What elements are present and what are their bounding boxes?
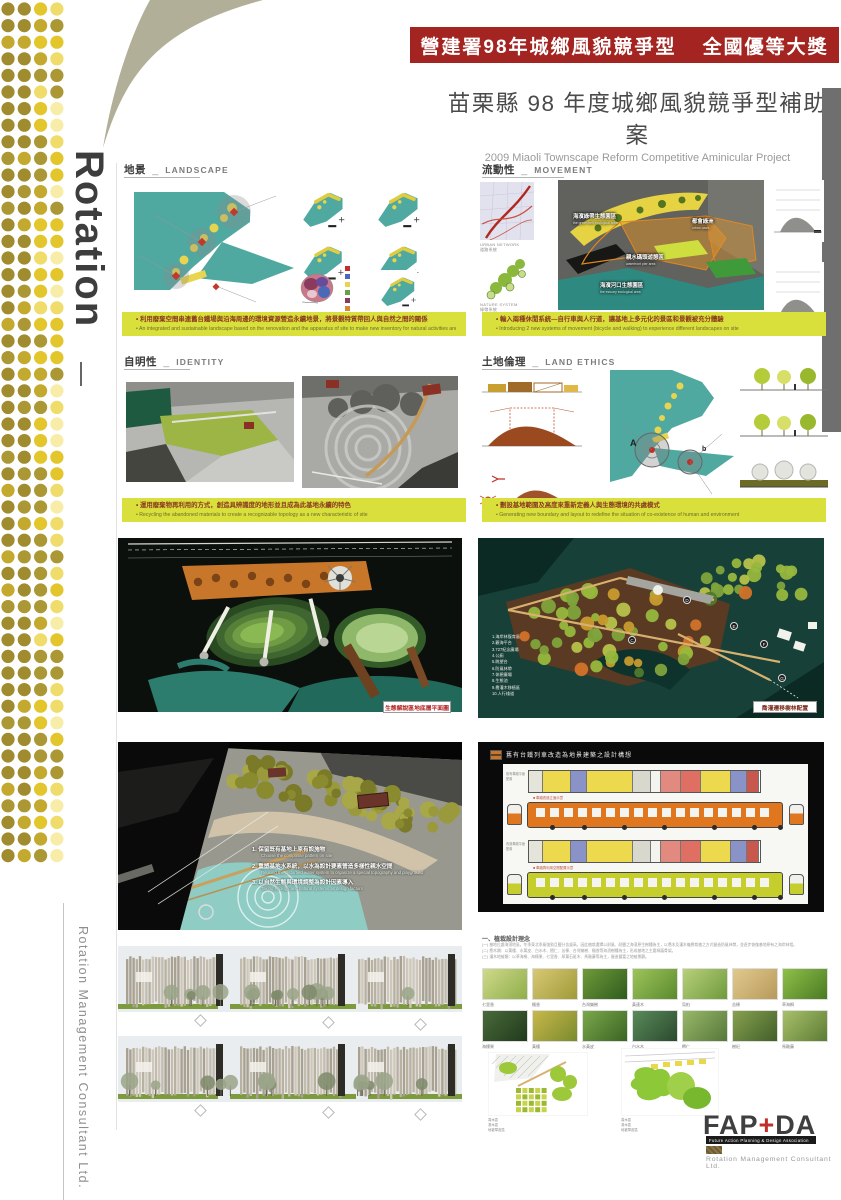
plan-thumbnail (414, 1108, 427, 1121)
section-en: LANDSCAPE (165, 165, 229, 175)
train-compartment (747, 841, 759, 862)
dot (18, 301, 31, 314)
dot (34, 334, 47, 347)
movement-aerial-map (558, 180, 764, 310)
dot (50, 550, 63, 563)
dot (50, 417, 63, 430)
dot (50, 334, 63, 347)
plant-item: 七里香 (482, 968, 528, 1008)
dot (1, 152, 14, 165)
dot (34, 152, 47, 165)
dot (34, 19, 47, 32)
train-compartment (747, 771, 759, 792)
dot (34, 268, 47, 281)
train-compartment (633, 841, 651, 862)
caption-zh: 利用廢棄空間串連舊台鐵場與沿海周邊的環境資源營造永續地景，將景觀特質帶回人與自然… (136, 315, 456, 326)
dot (50, 617, 63, 630)
dot (34, 484, 47, 497)
tree-legend-item: 10.人行棧道 (492, 691, 536, 697)
company-name-vertical: Rotation Management Consultant Ltd. (76, 926, 90, 1189)
aerial-label: 都會綠洲 urban oasis (692, 219, 714, 230)
dot (34, 119, 47, 132)
dot (50, 484, 63, 497)
dot (18, 583, 31, 596)
dot (1, 650, 14, 663)
dot (18, 749, 31, 762)
landscape-mini-map (296, 184, 348, 234)
dot (34, 600, 47, 613)
plan-thumbnail (322, 1016, 335, 1029)
train-endview (507, 874, 522, 895)
dot (1, 500, 14, 513)
train-note: ■ 車廂改造立面示意 (533, 795, 563, 800)
dot (34, 517, 47, 530)
train-row-label: 改造車廂平面配置 (506, 842, 526, 851)
train-compartment (731, 841, 747, 862)
plant-photo (532, 968, 578, 1000)
dot (18, 119, 31, 132)
land-ethics-diagram-1 (480, 372, 584, 398)
train-compartment (681, 771, 701, 792)
dot (18, 500, 31, 513)
train-compartment (571, 841, 587, 862)
dot (50, 368, 63, 381)
eco-plan-drawing (118, 538, 462, 712)
dot (50, 301, 63, 314)
dot (50, 733, 63, 746)
map-label-zh: 道路系統 (480, 247, 540, 252)
plant-item: 欖仁 (682, 1010, 728, 1050)
dot (18, 716, 31, 729)
dot (34, 766, 47, 779)
dot (18, 218, 31, 231)
dot (1, 69, 14, 82)
note-zh: 1. 保留既有基地上原有設施物 (252, 845, 457, 853)
train-note: ■ 車廂再利用空間配置示意 (533, 865, 573, 870)
train-compartment (633, 771, 651, 792)
dot (1, 301, 14, 314)
dot (50, 52, 63, 65)
dot (50, 119, 63, 132)
dot (34, 202, 47, 215)
dot (1, 766, 14, 779)
plant-photo (532, 1010, 578, 1042)
dot (34, 2, 47, 15)
planting-body-line: (一) 基地位處海濱地區，冬季東北季風強勁且鹽分含量高，因此植栽選擇以耐風、耐鹽… (482, 943, 834, 949)
dot (18, 766, 31, 779)
caption-en: Generating new boundary and layout to re… (496, 512, 816, 520)
award-banner-left: 營建署98年城鄉風貌競爭型 (420, 32, 676, 59)
train-compartment (529, 771, 543, 792)
dot (1, 799, 14, 812)
dot (50, 583, 63, 596)
landscape-geology-map (298, 270, 338, 306)
tree-section-diagram (738, 362, 830, 396)
dot (50, 666, 63, 679)
section-underline (124, 369, 190, 370)
dot (34, 102, 47, 115)
train-compartment (661, 771, 681, 792)
plant-photo (732, 968, 778, 1000)
dot (50, 135, 63, 148)
planting-plan-legend: 喬木區灌木區地被草皮區 (621, 1118, 651, 1133)
association-bar: Future Action Planning & Design Associat… (706, 1136, 816, 1144)
dot (18, 152, 31, 165)
dot (18, 401, 31, 414)
street-elevation-1 (118, 946, 462, 1012)
dot (1, 517, 14, 530)
dot (34, 384, 47, 397)
dot (1, 168, 14, 181)
dot (18, 849, 31, 862)
train-compartment (701, 841, 731, 862)
dot (1, 567, 14, 580)
dot (18, 318, 31, 331)
dot (34, 550, 47, 563)
eco-plan-panel (118, 538, 462, 712)
perspective-notes: 1. 保留既有基地上原有設施物 Choose the composite pat… (252, 845, 457, 895)
section-zh: 土地倫理 (482, 356, 526, 368)
aerial-label: 海濱河口生態園區 the estuary ecological area (600, 283, 643, 294)
dot (18, 235, 31, 248)
dot (34, 617, 47, 630)
dot (50, 816, 63, 829)
plant-item: 台灣欒樹 (582, 968, 628, 1008)
dot (18, 517, 31, 530)
dot (18, 417, 31, 430)
dot (1, 401, 14, 414)
dot (1, 832, 14, 845)
dot (34, 500, 47, 513)
dot (1, 318, 14, 331)
planting-body: (一) 基地位處海濱地區，冬季東北季風強勁且鹽分含量高，因此植栽選擇以耐風、耐鹽… (482, 943, 834, 961)
dot (1, 550, 14, 563)
dot (50, 799, 63, 812)
dot (18, 434, 31, 447)
perspective-render (118, 742, 462, 930)
plant-photo (682, 968, 728, 1000)
dot (34, 434, 47, 447)
dot (18, 2, 31, 15)
plant-item: 苦楝 (732, 968, 778, 1008)
dot (34, 583, 47, 596)
dot (1, 700, 14, 713)
dot (34, 832, 47, 845)
plant-photo-row: 海檬果黃槿水黃皮白水木欖仁樹杞馬鞍藤 (482, 1010, 828, 1050)
perspective-note: 3. 以自然生態與環境調整為設計因素導入 Taking ecology and … (252, 878, 457, 891)
dot (50, 517, 63, 530)
caption-identity: 運用廢棄物再利用的方式，創造具辨識度的地形並且成為此基地永續的特色 Recycl… (122, 498, 466, 522)
plant-name: 黃槿 (532, 1044, 578, 1050)
aerial-label-zh: 海濱綠帶生態園區 (573, 214, 618, 221)
dot (1, 733, 14, 746)
train-row-label: 既有車廂平面配置 (506, 772, 526, 781)
plan-thumbnail (414, 1018, 427, 1031)
dot (1, 368, 14, 381)
dot (18, 368, 31, 381)
dot (34, 318, 47, 331)
dot (34, 666, 47, 679)
tree-plan-marker: G (778, 674, 786, 682)
caption-zh: 輸入兩種休閒系統—自行車與人行道，讓基地上多元化的景區和景觀被充分體驗 (496, 315, 816, 326)
train-elevation-green (527, 872, 783, 898)
train-endview (507, 804, 522, 825)
street-elevation-2 (118, 1036, 462, 1102)
dot (18, 617, 31, 630)
dot (1, 119, 14, 132)
section-header-identity: 自明性 _ IDENTITY (124, 354, 225, 369)
plant-name: 馬鞍藤 (782, 1044, 828, 1050)
dot (34, 749, 47, 762)
aerial-label-zh: 親水碼頭遊憩區 (626, 255, 664, 262)
caption-en: Recycling the abandoned materials to cre… (136, 512, 456, 520)
dot (34, 401, 47, 414)
rotation-logotype: Rotation (66, 150, 111, 328)
tree-section-diagram-dark (738, 458, 830, 492)
dot (50, 268, 63, 281)
note-en: Taking ecology and natural systems as de… (261, 886, 457, 891)
dot (1, 451, 14, 464)
caption-landscape: 利用廢棄空間串連舊台鐵場與沿海周邊的環境資源營造永續地景，將景觀特質帶回人與自然… (122, 312, 466, 336)
plan-legend-item: 地被草皮區 (488, 1128, 518, 1133)
dot (50, 285, 63, 298)
dot (1, 600, 14, 613)
award-banner-right: 全國優等大獎 (703, 32, 829, 59)
aerial-label-en: the green belt ecological area (573, 221, 618, 225)
dot (1, 434, 14, 447)
plan-thumbnail (194, 1014, 207, 1027)
dot (34, 301, 47, 314)
train-compartment (571, 771, 587, 792)
dot (1, 666, 14, 679)
plant-photo (632, 968, 678, 1000)
dot (50, 633, 63, 646)
dot (50, 251, 63, 264)
land-ethics-map (602, 364, 734, 502)
plant-name: 海檬果 (482, 1044, 528, 1050)
dot (18, 268, 31, 281)
plan-thumbnail (194, 1104, 207, 1117)
train-elevation-orange (527, 802, 783, 828)
plant-name: 苦楝 (732, 1002, 778, 1008)
tree-plan-marker: C (628, 636, 636, 644)
dot (50, 218, 63, 231)
dot (34, 799, 47, 812)
section-en: IDENTITY (176, 357, 224, 367)
dot (34, 85, 47, 98)
note-en: Choose the composite pattern on site (261, 853, 457, 858)
urban-network-map (480, 182, 534, 240)
plant-item: 黃槿 (532, 1010, 578, 1050)
identity-model-photo-1 (126, 382, 294, 482)
section-sep: _ (163, 356, 169, 368)
plant-photo (682, 1010, 728, 1042)
dot (34, 683, 47, 696)
train-compartment (529, 841, 543, 862)
dot (50, 567, 63, 580)
movement-section-diagram (772, 180, 824, 242)
dot (18, 185, 31, 198)
plant-photo (782, 968, 828, 1000)
dot (34, 417, 47, 430)
dot (50, 152, 63, 165)
dot (34, 69, 47, 82)
dot (18, 202, 31, 215)
plant-item: 楓香 (532, 968, 578, 1008)
dot (34, 534, 47, 547)
plant-item: 樹杞 (732, 1010, 778, 1050)
dot (50, 19, 63, 32)
train-compartment (587, 841, 633, 862)
plant-name: 七里香 (482, 1002, 528, 1008)
dot (50, 683, 63, 696)
plant-photo (782, 1010, 828, 1042)
dot (18, 550, 31, 563)
dot (1, 52, 14, 65)
dot (34, 633, 47, 646)
dot (1, 85, 14, 98)
dot (1, 484, 14, 497)
train-compartment (681, 841, 701, 862)
dot (50, 85, 63, 98)
map-marker-a: A (630, 438, 637, 448)
dot (1, 268, 14, 281)
planting-body-line: (三) 灌木地被類：以草海桐、海檬果、七里香、厚葉石斑木、馬鞍藤等為主，營造豐富… (482, 955, 834, 961)
plan-legend-item: 地被草皮區 (621, 1128, 651, 1133)
dot (18, 832, 31, 845)
dot (50, 749, 63, 762)
train-compartment (543, 841, 571, 862)
eco-plan-label: 生態解說區地底層平面圖 (383, 701, 451, 713)
caption-zh: 運用廢棄物再利用的方式，創造具辨識度的地形並且成為此基地永續的特色 (136, 501, 456, 512)
dot (18, 69, 31, 82)
dot (1, 816, 14, 829)
planting-plan-1 (488, 1052, 588, 1116)
train-compartment (543, 771, 571, 792)
dot (18, 783, 31, 796)
dot (18, 85, 31, 98)
divider-under-logotype (80, 362, 82, 386)
dot (50, 168, 63, 181)
plant-photo (632, 1010, 678, 1042)
dot (1, 334, 14, 347)
section-underline (482, 177, 564, 178)
note-zh: 3. 以自然生態與環境調整為設計因素導入 (252, 878, 457, 886)
caption-land-ethics: 劃設基地範圍及高度來重新定義人與生態環境的共處模式 Generating new… (482, 498, 826, 522)
poster: Rotation Rotation Management Consultant … (0, 0, 841, 1200)
landscape-mini-map (370, 270, 424, 312)
dot (50, 716, 63, 729)
dot (18, 600, 31, 613)
dot (1, 202, 14, 215)
dot (18, 733, 31, 746)
plant-photo (732, 1010, 778, 1042)
train-compartment (651, 841, 661, 862)
train-compartment (661, 841, 681, 862)
page-title: 苗栗縣 98 年度城鄉風貌競爭型補助案 (440, 86, 835, 150)
aerial-label: 海濱綠帶生態園區 the green belt ecological area (573, 214, 618, 225)
content-divider-line (116, 163, 117, 1130)
dot (1, 185, 14, 198)
dot (34, 52, 47, 65)
aerial-label-zh: 海濱河口生態園區 (600, 283, 643, 290)
landscape-legend-strip (344, 264, 354, 312)
section-sep: _ (532, 356, 538, 368)
dot (1, 849, 14, 862)
perspective-note: 2. 重塑基地水系統，以水為設計要素營造多樣性親水空間 Reusing the … (252, 862, 457, 875)
dot (1, 683, 14, 696)
plant-photo (482, 968, 528, 1000)
dot-pattern-decoration (0, 0, 64, 872)
dot (1, 749, 14, 762)
dot (34, 368, 47, 381)
dot (50, 2, 63, 15)
dot (50, 434, 63, 447)
dot (18, 816, 31, 829)
dot (34, 700, 47, 713)
dot (1, 384, 14, 397)
dot (18, 334, 31, 347)
dot (50, 202, 63, 215)
dot (34, 351, 47, 364)
dot (34, 235, 47, 248)
dot (1, 218, 14, 231)
dot (1, 235, 14, 248)
dot (18, 633, 31, 646)
plant-item: 烏桕 (682, 968, 728, 1008)
dot (18, 285, 31, 298)
dot (18, 700, 31, 713)
section-header-land-ethics: 土地倫理 _ LAND ETHICS (482, 354, 616, 369)
planting-plan-2 (621, 1048, 719, 1116)
dot (1, 467, 14, 480)
dot (50, 36, 63, 49)
dot (18, 799, 31, 812)
dot (34, 168, 47, 181)
aerial-label-zh: 都會綠洲 (692, 219, 714, 226)
dot (34, 251, 47, 264)
dot (18, 251, 31, 264)
plant-item: 黃連木 (632, 968, 678, 1008)
dot (1, 417, 14, 430)
section-underline (482, 369, 572, 370)
dot (18, 484, 31, 497)
train-compartment (587, 771, 633, 792)
dot (50, 451, 63, 464)
land-ethics-diagram-2 (480, 402, 584, 454)
dot (50, 185, 63, 198)
caption-movement: 輸入兩種休閒系統—自行車與人行道，讓基地上多元化的景區和景觀被充分體驗 Intr… (482, 312, 826, 336)
dot (50, 318, 63, 331)
dot (1, 783, 14, 796)
dot (18, 567, 31, 580)
train-panel-title: 舊有台鐵列車改造為地景建築之設計構想 (506, 750, 632, 759)
nature-system-map (480, 256, 534, 300)
perspective-note: 1. 保留既有基地上原有設施物 Choose the composite pat… (252, 845, 457, 858)
dot (34, 650, 47, 663)
dot (34, 733, 47, 746)
dot (50, 102, 63, 115)
dot (1, 285, 14, 298)
dot (50, 351, 63, 364)
train-plan-strip (528, 840, 761, 863)
section-underline (124, 177, 200, 178)
dot (1, 135, 14, 148)
dot (18, 650, 31, 663)
caption-en: An integrated and sustainable landscape … (136, 326, 456, 334)
plant-photo (582, 1010, 628, 1042)
dot (50, 700, 63, 713)
